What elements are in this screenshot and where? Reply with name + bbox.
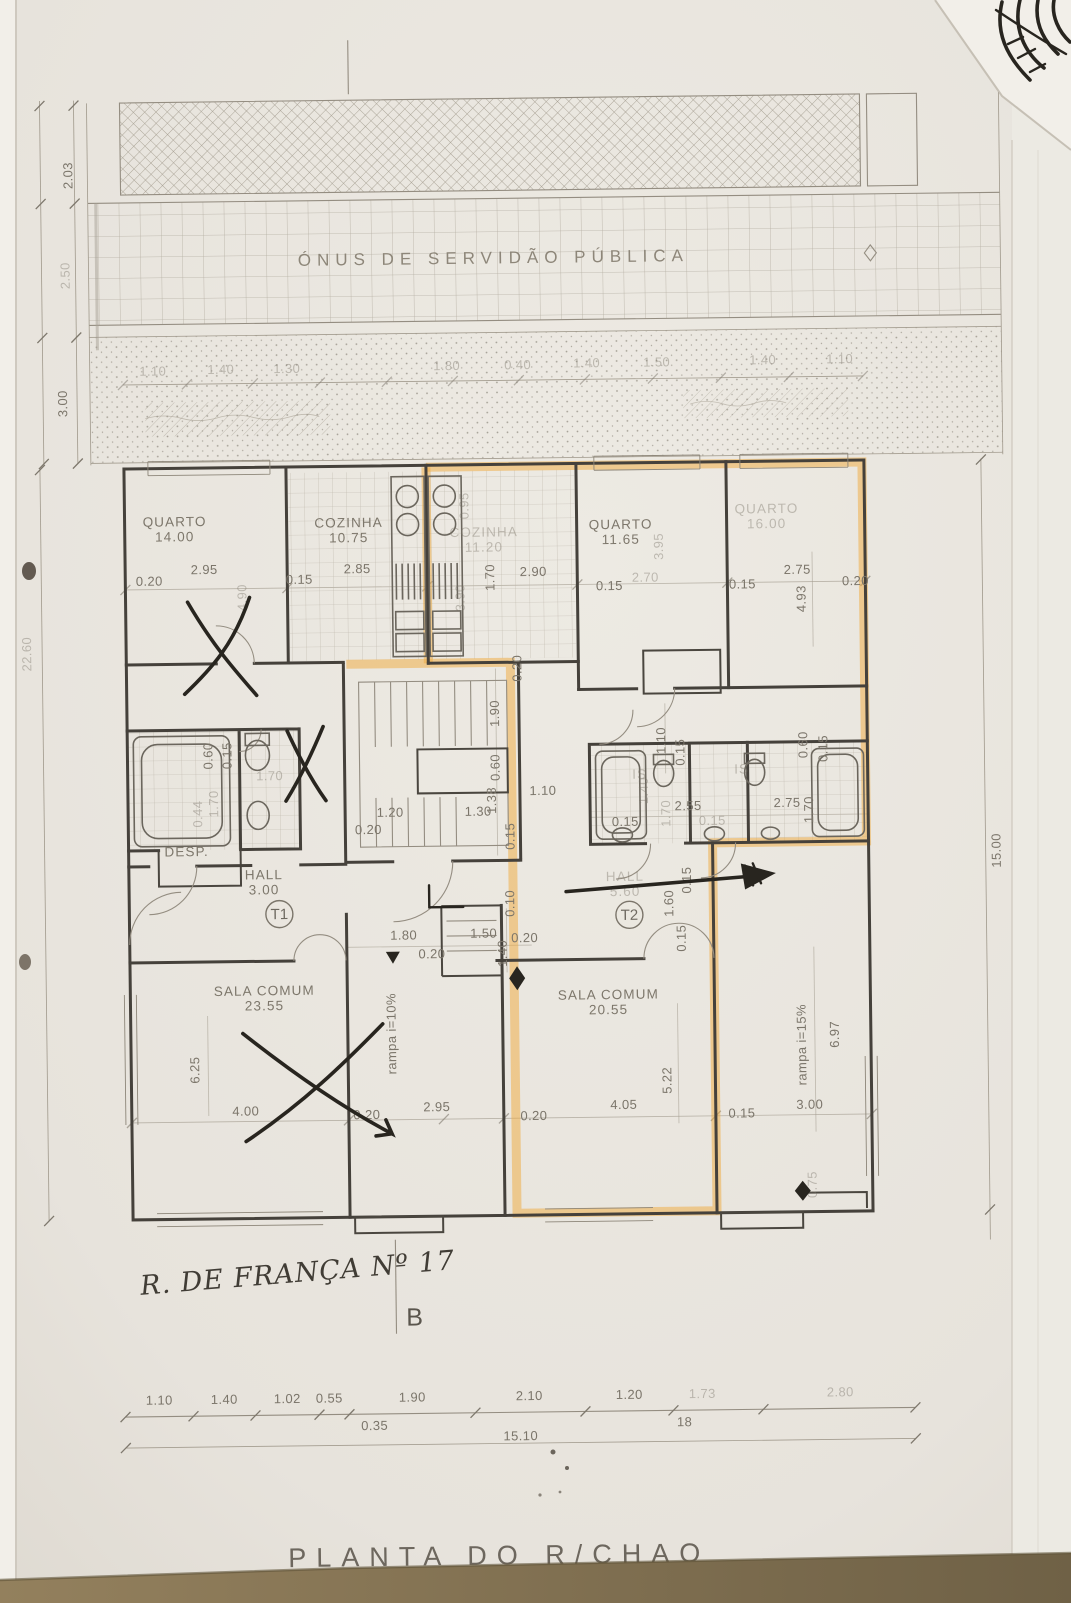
dimension-label: 2.03 xyxy=(60,162,75,189)
dimension-label: 0.60 xyxy=(200,742,215,769)
dimension-label: 0.20 xyxy=(136,574,163,589)
dimension-label: 1.40 xyxy=(495,940,510,967)
hole-mark xyxy=(19,954,31,970)
dimension-label: 0.15 xyxy=(672,739,687,766)
dimension-label: 2.95 xyxy=(423,1099,450,1114)
dimension-label: 1.80 xyxy=(390,927,417,942)
dimension-label: 3.00 xyxy=(55,390,70,417)
dimension-label: 0.20 xyxy=(509,655,524,682)
dimension-label: 4.00 xyxy=(232,1103,259,1118)
speck xyxy=(565,1466,569,1470)
dimension-label: 0.20 xyxy=(842,573,869,588)
dimension-label: 0.44 xyxy=(190,801,205,828)
dimension-label: 0.15 xyxy=(729,576,756,591)
dimension-label: 1.73 xyxy=(689,1386,716,1401)
ramp-label: rampa i=15% xyxy=(794,1004,810,1086)
dimension-label: 0.15 xyxy=(674,925,689,952)
room-name: IS xyxy=(734,761,749,776)
hatched-band xyxy=(119,93,917,195)
speck xyxy=(538,1493,541,1496)
dimension-label: 2.75 xyxy=(774,795,801,810)
dimension-label: 4.05 xyxy=(610,1097,637,1112)
dimension-label: 3.90 xyxy=(452,584,467,611)
dimension-label: 2.85 xyxy=(344,561,371,576)
dimension-label: 0.40 xyxy=(504,357,531,372)
dimension-label: 0.55 xyxy=(316,1390,343,1405)
dimension-label: 1.80 xyxy=(433,358,460,373)
dimension-label: 3.00 xyxy=(796,1097,823,1112)
dimension-label: 0.15 xyxy=(502,823,517,850)
dimension-label: 1.20 xyxy=(377,805,404,820)
dimension-label: 1.40 xyxy=(749,352,776,367)
dimension-label: 1.30 xyxy=(273,361,300,376)
dimension-label: 1.40 xyxy=(573,355,600,370)
dimension-label: 1.50 xyxy=(470,925,497,940)
dimension-label: 1.70 xyxy=(206,790,221,817)
dimension-label: 15.00 xyxy=(988,833,1003,868)
dimension-label: 2.80 xyxy=(827,1384,854,1399)
left-paper-edge xyxy=(0,0,16,1603)
dimension-label: 2.55 xyxy=(675,798,702,813)
dimension-label: 6.97 xyxy=(827,1021,842,1048)
dimension-label: 0.15 xyxy=(596,578,623,593)
dimension-label: 1.02 xyxy=(274,1391,301,1406)
dimension-label: 0.15 xyxy=(286,572,313,587)
dimension-label: 1.40 xyxy=(207,362,234,377)
dimension-label: 1.10 xyxy=(826,351,853,366)
dimension-label: 1.50 xyxy=(643,354,670,369)
floor-plan-photo: ÓNUS DE SERVIDÃO PÚBLICA xyxy=(0,0,1071,1603)
dimension-label: 1.90 xyxy=(399,1389,426,1404)
speck xyxy=(551,1450,556,1455)
dimension-label: 1.70 xyxy=(658,800,673,827)
unit-marker-label: T1 xyxy=(271,906,289,923)
dimension-label: 0.15 xyxy=(815,735,830,762)
dimension-label: 22.60 xyxy=(19,637,34,672)
section-letter: B xyxy=(406,1303,423,1331)
ramp-label: rampa i=10% xyxy=(383,993,399,1075)
dimension-label: 1.10 xyxy=(139,363,166,378)
dimension-label: 1.30 xyxy=(465,804,492,819)
dimension-label: 5.22 xyxy=(659,1067,674,1094)
dimension-label: 1.60 xyxy=(661,890,676,917)
dimension-label: 2.90 xyxy=(520,564,547,579)
dimension-label: 4.93 xyxy=(793,585,808,612)
dimension-label: 1.90 xyxy=(487,700,502,727)
dimension-label: 0.15 xyxy=(699,813,726,828)
dimension-label: 0.20 xyxy=(511,930,538,945)
dimension-label: 0.10 xyxy=(502,890,517,917)
photographed-floor-plan: ÓNUS DE SERVIDÃO PÚBLICA xyxy=(0,0,1071,1603)
dimension-label: 0.15 xyxy=(612,814,639,829)
dimension-label: 2.70 xyxy=(632,569,659,584)
dimension-label: 0.95 xyxy=(456,492,471,519)
room-name: HALL3.00 xyxy=(245,867,284,897)
stippled-band xyxy=(89,326,1002,463)
dimension-label: 1.10 xyxy=(653,727,668,754)
dimension-label: 18 xyxy=(677,1414,692,1429)
dimension-label: 0.15 xyxy=(728,1105,755,1120)
speck xyxy=(559,1491,562,1494)
unit-marker-label: T2 xyxy=(621,907,639,924)
dimension-label: 2.10 xyxy=(516,1388,543,1403)
dimension-label: 0.20 xyxy=(520,1108,547,1123)
hole-mark xyxy=(22,562,36,580)
dimension-label: 1.70 xyxy=(482,564,497,591)
dimension-label: 15.10 xyxy=(503,1428,538,1443)
dimension-label: 1.70 xyxy=(256,768,283,783)
room-name: DESP. xyxy=(164,844,208,860)
dimension-label: 0.60 xyxy=(487,754,502,781)
dimension-label: 3.95 xyxy=(651,533,666,560)
dimension-label: 0.15 xyxy=(219,742,234,769)
paper-crease xyxy=(96,203,98,350)
dimension-label: 1.10 xyxy=(529,783,556,798)
dimension-label: 0.60 xyxy=(795,731,810,758)
dimension-label: 6.25 xyxy=(187,1057,202,1084)
dimension-label: 1.10 xyxy=(146,1392,173,1407)
dimension-label: 2.95 xyxy=(191,562,218,577)
dimension-label: 1.20 xyxy=(616,1387,643,1402)
dimension-label: 2.50 xyxy=(57,262,72,289)
room-name: IS xyxy=(632,767,647,782)
dimension-label: 0.35 xyxy=(361,1418,388,1433)
dimension-label: 2.75 xyxy=(784,562,811,577)
dimension-label: 1.70 xyxy=(801,796,816,823)
dimension-label: 0.20 xyxy=(355,822,382,837)
dimension-label: 0.20 xyxy=(418,946,445,961)
dimension-label: 1.40 xyxy=(211,1392,238,1407)
right-paper-edge xyxy=(1012,0,1071,1603)
